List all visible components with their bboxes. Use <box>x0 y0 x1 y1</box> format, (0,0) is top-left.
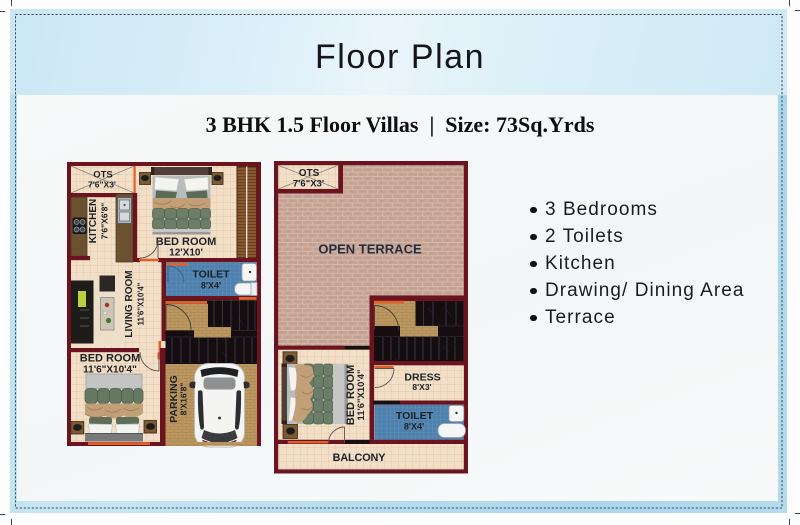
svg-text:KITCHEN: KITCHEN <box>88 199 99 243</box>
svg-text:8'X4': 8'X4' <box>201 281 221 291</box>
svg-text:8'X3': 8'X3' <box>412 382 431 392</box>
svg-text:8'X16'8": 8'X16'8" <box>179 383 189 416</box>
svg-text:BED ROOM: BED ROOM <box>156 236 217 248</box>
svg-text:12'X10': 12'X10' <box>169 248 203 259</box>
svg-text:TOILET: TOILET <box>396 410 434 422</box>
svg-text:TOILET: TOILET <box>192 269 230 281</box>
svg-text:BALCONY: BALCONY <box>333 452 387 464</box>
svg-text:BED ROOM: BED ROOM <box>80 353 141 365</box>
svg-text:LIVING ROOM: LIVING ROOM <box>124 270 135 337</box>
svg-text:7'6"X3': 7'6"X3' <box>88 180 116 190</box>
svg-text:7'6"X3': 7'6"X3' <box>293 179 324 190</box>
svg-text:OTS: OTS <box>299 168 320 179</box>
svg-text:11'6"X10'4": 11'6"X10'4" <box>137 282 146 325</box>
svg-text:8'X4': 8'X4' <box>404 422 424 432</box>
svg-text:11'6"X10'4": 11'6"X10'4" <box>356 369 367 420</box>
svg-text:7'6"X6'8": 7'6"X6'8" <box>100 203 110 240</box>
svg-text:OPEN TERRACE: OPEN TERRACE <box>318 242 422 257</box>
